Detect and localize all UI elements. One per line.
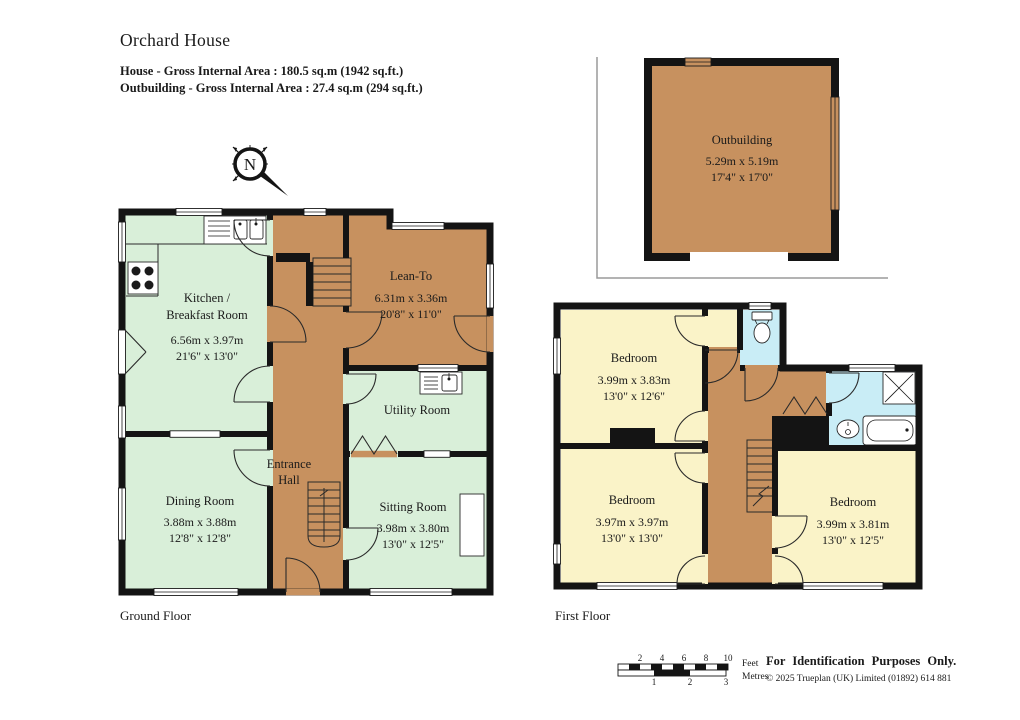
house-area-line: House - Gross Internal Area : 180.5 sq.m… — [120, 64, 403, 79]
bedroom-right-name: Bedroom — [830, 495, 877, 509]
scale-bar-feet — [618, 664, 728, 670]
landing-lobby — [705, 310, 740, 350]
feet-tick-10: 10 — [724, 653, 734, 663]
entrance-hall-name-2: Hall — [278, 473, 300, 487]
sitting-name: Sitting Room — [379, 500, 446, 514]
lean-to-imperial: 20'8" x 11'0" — [380, 307, 442, 321]
wall-stub — [306, 262, 313, 306]
bedroom-right-imperial: 13'0" x 12'5" — [822, 533, 884, 547]
ground-floor-plan: Kitchen / Breakfast Room 6.56m x 3.97m 2… — [118, 206, 498, 598]
feet-unit-label: Feet — [742, 659, 758, 669]
outbuilding-imperial: 17'4" x 17'0" — [711, 170, 773, 184]
copyright-note: © 2025 Trueplan (UK) Limited (01892) 614… — [766, 674, 951, 684]
bedroom-left-name: Bedroom — [609, 493, 656, 507]
kitchen-metric: 6.56m x 3.97m — [171, 333, 244, 347]
utility-name: Utility Room — [384, 403, 451, 417]
feet-tick-2: 2 — [638, 653, 643, 663]
dining-imperial: 12'8" x 12'8" — [169, 531, 231, 545]
outbuilding-area-line: Outbuilding - Gross Internal Area : 27.4… — [120, 81, 423, 96]
scale-bar-metres — [618, 670, 726, 676]
bedroom-right-metric: 3.99m x 3.81m — [817, 517, 890, 531]
kitchen-name-1: Kitchen / — [184, 291, 231, 305]
bedroom-left-imperial: 13'0" x 13'0" — [601, 531, 663, 545]
sitting-imperial: 13'0" x 12'5" — [382, 537, 444, 551]
outbuilding-opening-bottom — [690, 252, 788, 262]
shower-icon — [883, 372, 915, 404]
bedroom-front-imperial: 13'0" x 12'6" — [603, 389, 665, 403]
toilet-icon — [752, 312, 772, 343]
outbuilding-plan: Outbuilding 5.29m x 5.19m 17'4" x 17'0" — [595, 48, 895, 288]
metre-tick-3: 3 — [724, 677, 729, 687]
first-floor-plan: Bedroom 3.99m x 3.83m 13'0" x 12'6" Bedr… — [553, 298, 928, 598]
lean-to-name: Lean-To — [390, 269, 432, 283]
entrance-hall-name-1: Entrance — [267, 457, 312, 471]
feet-tick-8: 8 — [704, 653, 709, 663]
ground-floor-label: Ground Floor — [120, 608, 191, 624]
basin-icon — [837, 420, 859, 438]
identification-note: For Identification Purposes Only. — [766, 654, 956, 669]
bedroom-front-metric: 3.99m x 3.83m — [598, 373, 671, 387]
outbuilding-metric: 5.29m x 5.19m — [706, 154, 779, 168]
dining-name: Dining Room — [166, 494, 235, 508]
metres-unit-label: Metres — [742, 672, 768, 682]
compass-south-pointer — [260, 172, 288, 196]
feet-tick-4: 4 — [660, 653, 665, 663]
wall-stub — [276, 253, 310, 262]
bedroom-front-name: Bedroom — [611, 351, 658, 365]
bathtub-icon — [863, 416, 917, 445]
sitting-bay — [460, 494, 484, 556]
page-title: Orchard House — [120, 30, 230, 51]
dining-metric: 3.88m x 3.88m — [164, 515, 237, 529]
room-lean-to — [346, 210, 492, 368]
first-floor-label: First Floor — [555, 608, 610, 624]
bedroom-left-metric: 3.97m x 3.97m — [596, 515, 669, 529]
lean-to-metric: 6.31m x 3.36m — [375, 291, 448, 305]
sitting-metric: 3.98m x 3.80m — [377, 521, 450, 535]
wall-mass — [772, 416, 829, 448]
utility-sink-icon — [420, 372, 462, 394]
kitchen-hob-icon — [128, 262, 158, 294]
compass-north-label: N — [244, 155, 256, 174]
feet-tick-6: 6 — [682, 653, 687, 663]
kitchen-imperial: 21'6" x 13'0" — [176, 349, 238, 363]
chimney-breast — [610, 428, 655, 444]
metre-tick-2: 2 — [688, 677, 693, 687]
kitchen-name-2: Breakfast Room — [166, 308, 248, 322]
outbuilding-name: Outbuilding — [712, 133, 773, 147]
compass-rose-icon: N — [224, 136, 296, 208]
metre-tick-1: 1 — [652, 677, 657, 687]
